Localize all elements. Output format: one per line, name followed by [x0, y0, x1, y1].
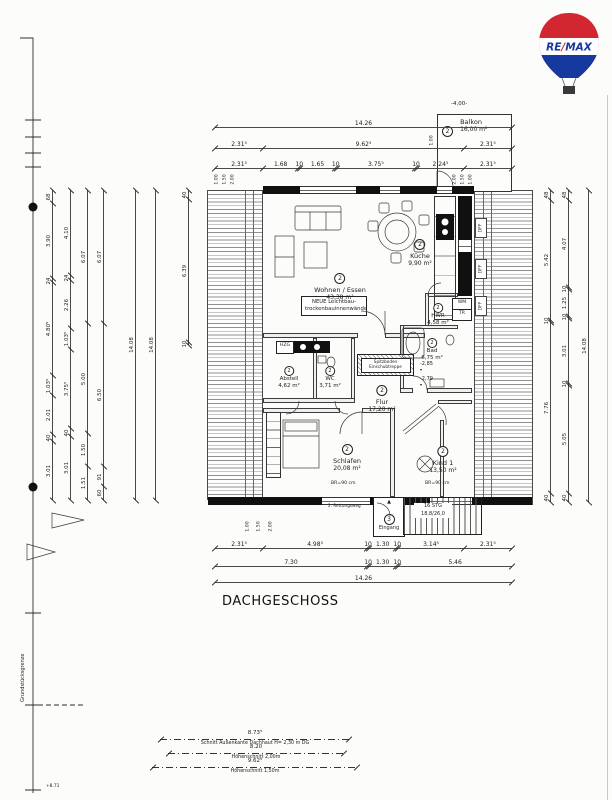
dim-label: 3.75⁵ [368, 162, 384, 168]
dimension-row: 2.31⁵9.62⁵2.31⁵ [215, 148, 512, 149]
dim-label: 2.26 [64, 299, 70, 311]
dim-segment: 7.76 [550, 322, 551, 493]
dimension-row: 14.26 [215, 127, 512, 128]
wardrobe [266, 412, 281, 478]
dim-label: 2.01 [46, 409, 52, 421]
exterior-wall [400, 186, 437, 194]
section-line [152, 767, 358, 768]
sideboard [275, 236, 294, 277]
room-name: Küche [408, 252, 432, 260]
dim-segment: 7.30 [215, 566, 367, 567]
height-line-label: 1.00 [246, 521, 251, 531]
dim-segment: 6.07 [87, 190, 88, 324]
dimension-column: 406.3910 [188, 190, 189, 345]
entrance-cell: ▲ 3 Eingang [373, 497, 405, 537]
exterior-wall [356, 186, 380, 194]
dim-label: 1.51 [81, 477, 87, 489]
section-caption: Höhenschnitt 1,50m [231, 769, 280, 774]
room-name: Flur [368, 398, 395, 406]
attic-stair-hatch: Spitzboden Einschubtreppe [357, 354, 414, 376]
height-line-label: 1.50 [461, 174, 466, 184]
dim-segment: 3.01 [568, 319, 569, 384]
scan-edge-line [607, 95, 608, 800]
stair-count: 16 STG [414, 503, 452, 511]
boundary-tick [25, 120, 41, 790]
dim-segment: 9.62⁵ [263, 148, 464, 149]
roof-window: DFF [475, 296, 487, 316]
stair-label: 16 STG 18,8/26,0 [414, 503, 452, 518]
dim-label: 14.08 [129, 337, 135, 353]
dimension-column: 484.07101.25103.01105.0540 [568, 190, 569, 502]
dim-label: 6.39 [182, 265, 188, 277]
dim-segment: 2.31⁵ [464, 148, 512, 149]
sill-height-label: BR=90 cm [331, 481, 356, 486]
room-area: 3,71 m² [319, 383, 341, 389]
roof-rail [253, 191, 254, 499]
dim-label: 1.03⁵ [46, 378, 52, 392]
dim-segment: 14.08 [135, 190, 136, 500]
room-label-abstell: 2 Abstell 4,62 m² [278, 358, 300, 389]
dim-label: 7.30 [284, 560, 297, 566]
dim-label: 1.65 [311, 162, 324, 168]
roof-rail [491, 191, 492, 504]
door-arc [340, 412, 362, 434]
logo-text: RE/MAX [546, 42, 593, 54]
dim-segment: 5.05 [568, 385, 569, 493]
dim-segment: 4.98⁵ [263, 548, 367, 549]
roof-window: DFF [475, 218, 487, 238]
dim-segment: 3.01 [70, 437, 71, 500]
dim-label: 14.26 [355, 121, 372, 127]
room-label-flur: 2 Flur 17,20 m² [368, 377, 395, 414]
dim-segment: 2.01 [52, 395, 53, 434]
room-name: Kind 1 [429, 459, 456, 467]
heating-label: HZG [280, 343, 290, 348]
dining-chair [419, 215, 429, 225]
dim-segment: 4.80⁵ [52, 283, 53, 376]
room-area: 17,20 m² [368, 406, 395, 414]
unit-number-badge: 2 [433, 303, 443, 313]
room-area: 4,58 m² [427, 320, 449, 326]
dim-segment: 3.90 [52, 203, 53, 278]
roof-window-label: DFF [479, 302, 484, 311]
dim-segment: 5.46 [398, 566, 512, 567]
dimension-column: 6.076.509160 [103, 190, 104, 500]
dim-label: 5.00 [81, 373, 87, 385]
dining-chair [368, 221, 378, 231]
dining-chair [391, 253, 401, 263]
roof-window: DFF [475, 259, 487, 279]
remax-balloon-logo: RE/MAX [532, 10, 606, 102]
room-name: Abstell [278, 376, 300, 382]
room-label-wohnen: 2 Wohnen / Essen 43,38 m² [314, 265, 366, 302]
dim-label: 5.46 [448, 560, 461, 566]
dim-label: 1.68 [274, 162, 287, 168]
dim-segment: 2.31⁵ [464, 548, 512, 549]
dimension-column: 14.08 [155, 190, 156, 500]
dryer-box: TR [452, 309, 472, 321]
washer-label: WM [458, 300, 467, 305]
dim-label: 1.30 [376, 542, 389, 548]
dimension-column: 14.08 [135, 190, 136, 500]
dim-segment: 10 [188, 343, 189, 345]
dim-label: 40 [562, 494, 568, 501]
dim-label: 10 [182, 340, 188, 347]
dimension-row: 14.26 [215, 582, 512, 583]
dimension-column: 6.075.001.501.51 [87, 190, 88, 500]
window-opening [300, 186, 356, 194]
room-area: 9,90 m² [408, 260, 432, 268]
dim-segment: 4.07 [568, 200, 569, 287]
height-line-label: 1.00 [215, 174, 220, 184]
dim-segment: 60 [103, 487, 104, 500]
interior-wall [263, 333, 358, 338]
floor-title: DACHGESCHOSS [222, 594, 339, 609]
site-triangle-marker [52, 513, 84, 528]
dimension-column: 683.90244.80⁵1.03⁵2.01403.01 [52, 190, 53, 500]
dim-segment: 2.24⁵ [417, 168, 464, 169]
unit-number-badge: 2 [438, 446, 449, 457]
dim-segment: 1.30 [369, 566, 396, 567]
unit-number-badge: 2 [325, 366, 335, 376]
scanned-floorplan-page: RE/MAX 2 Balkon 16,00 m² -4,00- 1.00 [0, 0, 612, 800]
dim-segment: 4.10 [70, 190, 71, 276]
dim-label: 1.50 [81, 444, 87, 456]
dim-segment: 1.50 [87, 434, 88, 467]
section-value: 9.62⁵ [248, 758, 262, 764]
balcony-offset-dim: -4,00- [451, 101, 467, 107]
room-name: Eingang [374, 525, 404, 531]
dim-segment: 1.30 [369, 548, 396, 549]
bed [283, 420, 319, 468]
note-line: trockenbauinnenwände [305, 306, 363, 313]
height-line-label: 2.00 [453, 174, 458, 184]
dim-label: 7.76 [544, 402, 550, 414]
dim-label: 2.31⁵ [480, 142, 496, 148]
dim-segment: 1.51 [87, 467, 88, 500]
dim-segment: 3.75⁵ [70, 350, 71, 429]
height-line-label: 2.00 [269, 521, 274, 531]
dim-label: 3.75⁵ [64, 382, 70, 396]
dim-label: 14.08 [582, 338, 588, 354]
dim-label: 1.30 [376, 560, 389, 566]
dim-label: 2.31⁵ [231, 142, 247, 148]
dim-segment: 2.26 [70, 281, 71, 328]
dim-label: 9.62⁵ [356, 142, 372, 148]
dim-label: 3.01 [562, 345, 568, 357]
dim-segment: 5.42 [550, 201, 551, 320]
dim-segment: 1.65 [300, 168, 334, 169]
dim-label: 2.31⁵ [231, 162, 247, 168]
unit-number-badge: 2 [377, 385, 388, 396]
dim-label: 14.26 [355, 576, 372, 582]
section-line [160, 739, 350, 740]
dim-label: 6.50 [97, 389, 103, 401]
level-mark: -2,79▾ [420, 376, 433, 388]
survey-point-dot [29, 203, 38, 212]
dim-label: 3.90 [46, 235, 52, 247]
room-area: 13,50 m² [429, 467, 456, 475]
sill-height-label: BR=90 cm [425, 481, 450, 486]
interior-wall [427, 388, 472, 393]
interior-wall [390, 408, 395, 497]
dim-label: 2.31⁵ [480, 542, 496, 548]
dining-chair [402, 201, 412, 211]
window-opening [380, 186, 400, 194]
dim-segment: 2.31⁵ [215, 168, 263, 169]
balloon-bottom-blue [532, 55, 606, 102]
dim-label: 68 [46, 193, 52, 200]
dim-label: 3.01 [64, 462, 70, 474]
dim-segment: 14.26 [215, 127, 512, 128]
survey-point-dot [29, 483, 38, 492]
dim-label: 2.24⁵ [433, 162, 449, 168]
unit-number-badge: 2 [334, 273, 345, 284]
dim-segment: 1.03⁵ [52, 376, 53, 396]
unit-number-badge: 3 [384, 514, 395, 525]
room-label-kind1: 2 Kind 1 13,50 m² [429, 438, 456, 475]
roof-band-left [207, 190, 263, 500]
exterior-wall [452, 186, 474, 194]
room-name: Wohnen / Essen [314, 286, 366, 294]
dim-segment: 14.08 [155, 190, 156, 500]
dim-segment: 2.31⁵ [464, 168, 512, 169]
section-value: 8.73⁵ [248, 730, 262, 736]
room-area: 6,75 m² [421, 355, 443, 361]
room-area: 43,38 m² [314, 294, 366, 302]
interior-wall [351, 338, 355, 402]
dim-segment: 1.25 [568, 290, 569, 317]
dim-segment: 3.14⁵ [398, 548, 463, 549]
dimension-row: 7.30101.30105.46 [215, 566, 512, 567]
attic-stair-line: Einschubtreppe [362, 364, 410, 370]
kitchenette-unit [292, 341, 330, 353]
dim-segment: 14.08 [588, 190, 589, 502]
dim-segment: 2.31⁵ [215, 148, 263, 149]
dim-segment: 3.01 [52, 442, 53, 500]
dim-label: 4.98⁵ [307, 542, 323, 548]
dim-segment: 6.50 [103, 324, 104, 467]
dim-label: 40 [544, 494, 550, 501]
entrance-arrow-icon: ▲ [374, 500, 404, 506]
dimension-column: 485.42107.7640 [550, 190, 551, 502]
dim-label: 5.05 [562, 433, 568, 445]
dim-label: 6.07 [97, 251, 103, 263]
dining-chair [379, 203, 389, 213]
grundstuecksgrenze-label: Grundstücksgrenze [20, 654, 26, 703]
sofa-cushions [295, 212, 341, 230]
room-label-bad: 2 Bad 6,75 m² [421, 330, 443, 361]
bed-pillow [285, 422, 317, 431]
dim-label: 5.42 [544, 254, 550, 266]
dim-label: 1.03⁵ [64, 332, 70, 346]
room-label-schlafen: 2 Schlafen 20,08 m² [333, 436, 361, 473]
stair-dimensions: 18,8/26,0 [414, 511, 452, 519]
unit-number-badge: 2 [284, 366, 294, 376]
dim-label: 4.07 [562, 238, 568, 250]
balloon-ropes [562, 78, 576, 86]
dim-segment: 6.39 [188, 199, 189, 343]
section-value: 8.20 [250, 744, 262, 750]
interior-wall [263, 398, 355, 403]
sofa [295, 206, 341, 230]
dim-label: 3.01 [46, 465, 52, 477]
dim-label: 2.31⁵ [231, 542, 247, 548]
dim-label: 3.14⁵ [423, 542, 439, 548]
dimension-column: 4.10242.261.03⁵3.75⁵403.01 [70, 190, 71, 500]
dim-label: 2.31⁵ [480, 162, 496, 168]
dim-label: 6.07 [81, 251, 87, 263]
section-line [168, 753, 345, 754]
balloon-basket [563, 86, 575, 94]
dryer-label: TR [459, 311, 465, 316]
benchmark-label: +8.71 [46, 784, 59, 789]
unit-number-badge: 2 [427, 338, 437, 348]
roof-rail [245, 191, 246, 499]
exterior-wall [208, 497, 322, 505]
diagonal-wall [403, 404, 438, 434]
interior-wall [400, 388, 413, 393]
dim-label: 60 [97, 490, 103, 497]
dimension-column: 14.08 [588, 190, 589, 502]
dim-segment: 3.75⁵ [337, 168, 415, 169]
heating-box: HZG [276, 341, 294, 354]
room-area: 4,62 m² [278, 383, 300, 389]
dim-segment: 91 [103, 467, 104, 487]
attic-stair-label: Spitzboden Einschubtreppe [361, 358, 411, 373]
height-line-label: 2.00 [231, 174, 236, 184]
room-name: Balkon [460, 118, 487, 126]
exterior-wall [263, 186, 300, 194]
window-opening [458, 240, 472, 252]
interior-wall [438, 400, 472, 404]
room-area: 20,08 m² [333, 465, 361, 473]
dim-segment: 40 [550, 493, 551, 502]
roof-window-label: DFF [479, 224, 484, 233]
escape-route-label: 2. Rettungsweg [328, 503, 361, 508]
roof-window-label: DFF [479, 265, 484, 274]
room-name: Schlafen [333, 457, 361, 465]
dim-segment: 14.26 [215, 582, 512, 583]
room-label-hwr: 2 HWR 4,58 m² [427, 295, 449, 326]
dim-label: 14.08 [149, 337, 155, 353]
dimension-row: 2.31⁵1.68101.65103.75⁵102.24⁵2.31⁵ [215, 168, 512, 169]
height-line-label: 1.50 [223, 174, 228, 184]
dim-segment: 5.00 [87, 324, 88, 434]
interior-wall [385, 333, 425, 338]
dimension-row: 2.31⁵4.98⁵101.30103.14⁵2.31⁵ [215, 548, 512, 549]
dim-segment: 1.03⁵ [70, 328, 71, 350]
dim-segment: 1.68 [263, 168, 298, 169]
balcony-inset-dim: 1.00 [430, 135, 435, 145]
unit-number-badge: 2 [415, 239, 426, 250]
balcony-door-opening [437, 186, 452, 194]
dim-label: 4.10 [64, 227, 70, 239]
dim-segment: 40 [568, 493, 569, 502]
height-line-label: 1.50 [257, 521, 262, 531]
dim-segment: 6.07 [103, 190, 104, 324]
exterior-wall [458, 196, 472, 240]
site-triangle-marker [27, 544, 55, 560]
room-label-kueche: 2 Küche 9,90 m² [408, 231, 432, 268]
toilet [446, 335, 454, 345]
dim-label: 1.25 [562, 297, 568, 309]
dim-segment: 2.31⁵ [215, 548, 263, 549]
room-label-wc: 2 WC 3,71 m² [319, 358, 341, 389]
dim-label: 4.80⁵ [46, 322, 52, 336]
exterior-wall [458, 252, 472, 296]
dim-label: 91 [97, 473, 103, 480]
level-mark: -2,85▾ [420, 361, 433, 373]
dining-table-inner [385, 220, 409, 244]
unit-number-badge: 2 [341, 444, 352, 455]
height-line-label: 1.00 [469, 174, 474, 184]
